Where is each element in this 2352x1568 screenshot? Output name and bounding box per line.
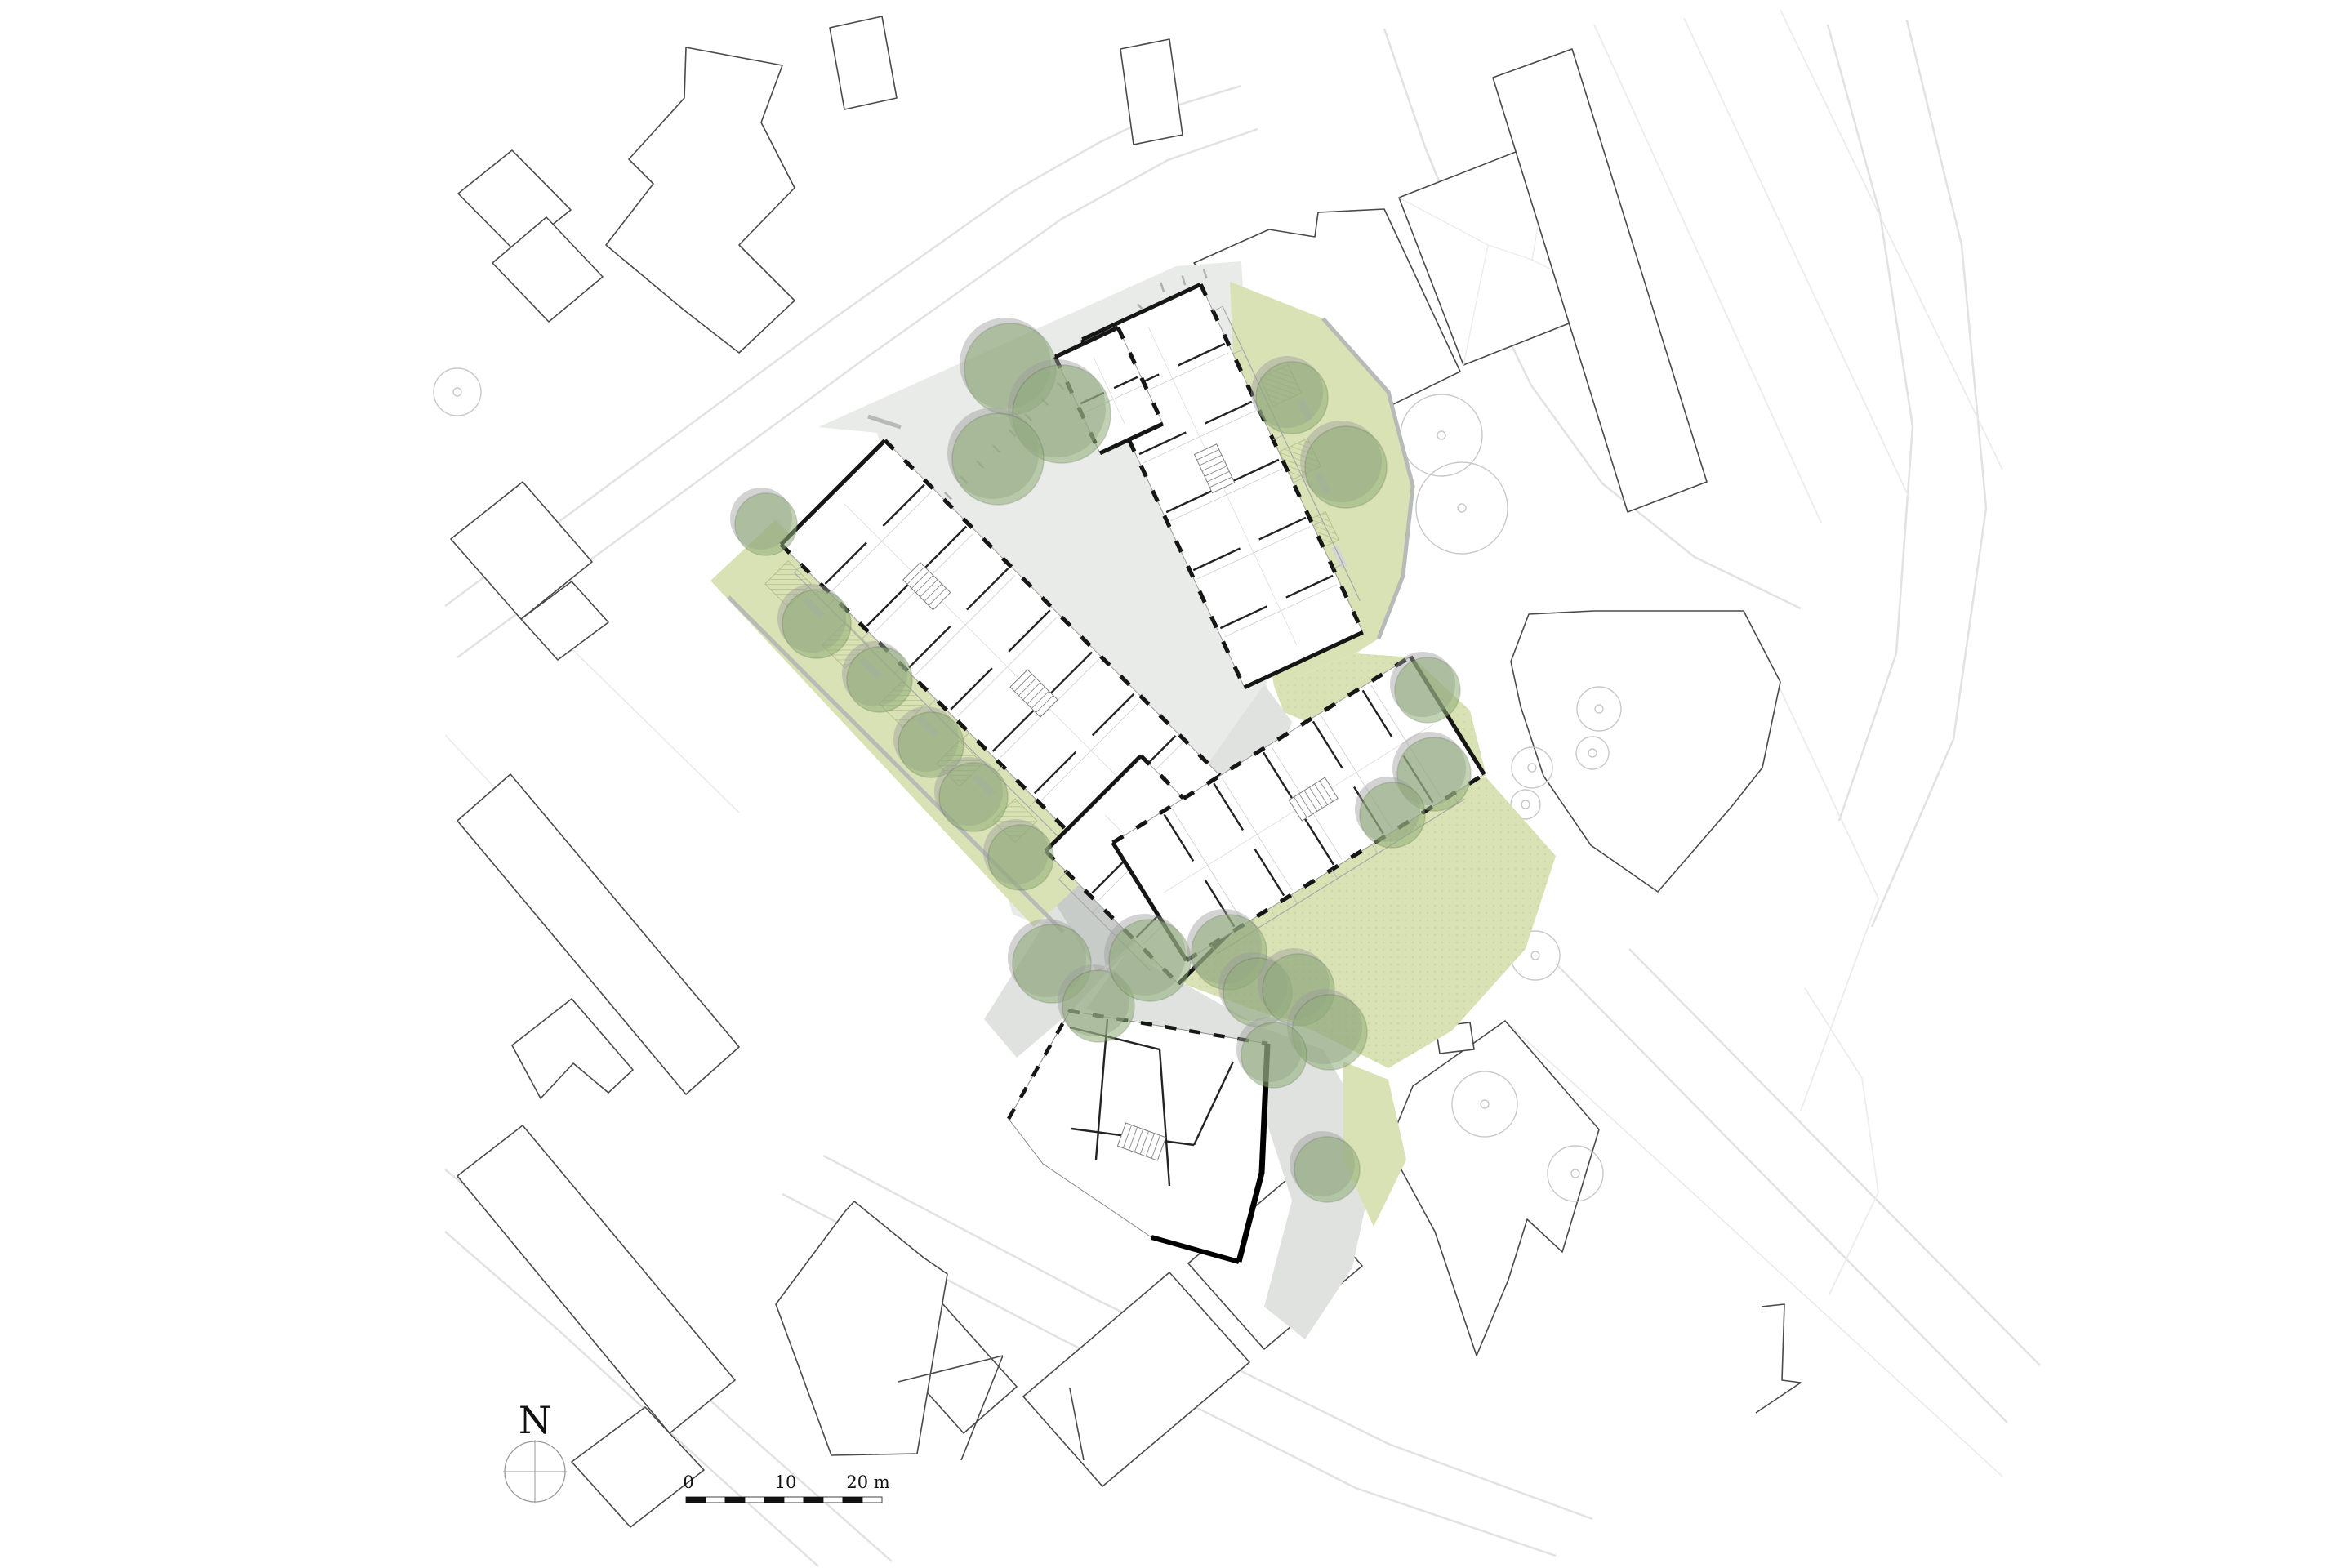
tree: [730, 488, 797, 555]
scale-bar-segment: [706, 1497, 725, 1503]
scale-label-0: 0: [683, 1472, 693, 1492]
block-d: [1009, 1011, 1267, 1262]
scale-label-20m: 20 m: [846, 1472, 889, 1492]
scale-bar-segment: [862, 1497, 882, 1503]
scale-label-10: 10: [775, 1472, 797, 1492]
scale-bar-segments: [686, 1497, 882, 1503]
north-arrow-label: N: [519, 1398, 551, 1442]
scale-bar: 0 10 20 m: [683, 1472, 889, 1503]
scale-bar-segment: [784, 1497, 804, 1503]
scale-bar-segment: [804, 1497, 823, 1503]
scale-bar-segment: [823, 1497, 843, 1503]
scale-bar-segment: [843, 1497, 862, 1503]
site-plan-drawing: N 0 10 20 m: [0, 0, 2352, 1568]
scale-bar-segment: [725, 1497, 745, 1503]
scale-bar-segment: [686, 1497, 706, 1503]
north-arrow: N: [503, 1398, 567, 1503]
plan-layers: [434, 10, 2040, 1566]
scale-bar-segment: [745, 1497, 764, 1503]
scale-bar-segment: [764, 1497, 784, 1503]
